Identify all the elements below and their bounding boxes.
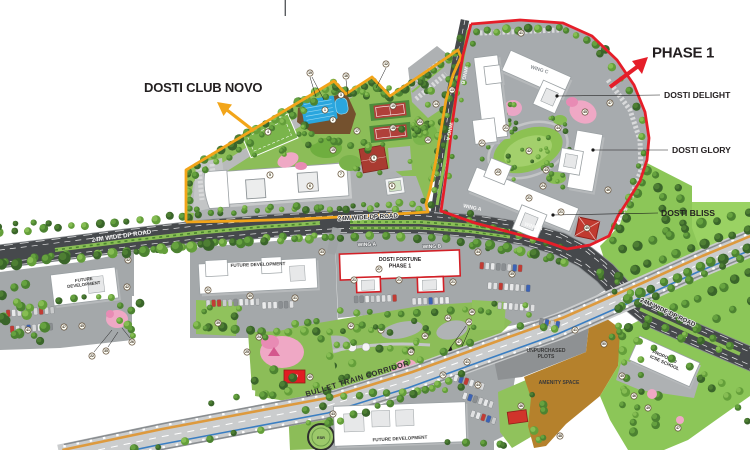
svg-text:32: 32 (126, 258, 130, 262)
svg-text:21: 21 (504, 126, 508, 130)
svg-text:PHASE 1: PHASE 1 (652, 45, 714, 62)
svg-text:24: 24 (541, 184, 545, 188)
svg-text:2: 2 (332, 118, 334, 122)
svg-text:18: 18 (391, 126, 395, 130)
svg-text:22: 22 (90, 354, 94, 358)
svg-text:42: 42 (349, 324, 353, 328)
svg-text:DOSTI CLUB NOVO: DOSTI CLUB NOVO (144, 80, 262, 95)
svg-text:DOSTI GLORY: DOSTI GLORY (672, 145, 731, 155)
svg-text:21: 21 (206, 288, 210, 292)
svg-text:21: 21 (527, 196, 531, 200)
svg-text:21: 21 (451, 280, 455, 284)
svg-text:3: 3 (340, 93, 342, 97)
svg-text:14: 14 (434, 102, 438, 106)
svg-text:DOSTI DELIGHT: DOSTI DELIGHT (664, 90, 731, 100)
svg-text:23: 23 (496, 170, 500, 174)
svg-text:43: 43 (331, 412, 335, 416)
svg-text:44: 44 (446, 316, 450, 320)
svg-text:1: 1 (324, 108, 326, 112)
svg-text:43: 43 (544, 168, 548, 172)
svg-text:21: 21 (559, 210, 563, 214)
svg-text:DOSTI BLISS: DOSTI BLISS (661, 208, 715, 218)
svg-text:26: 26 (130, 340, 134, 344)
svg-text:12: 12 (384, 62, 388, 66)
svg-text:17: 17 (355, 129, 359, 133)
svg-text:6: 6 (309, 184, 311, 188)
svg-text:45: 45 (583, 110, 587, 114)
svg-text:WING B: WING B (422, 243, 441, 250)
svg-text:29: 29 (467, 320, 471, 324)
svg-text:44: 44 (556, 126, 560, 130)
svg-text:45: 45 (80, 324, 84, 328)
svg-text:47: 47 (457, 340, 461, 344)
svg-text:47: 47 (62, 325, 66, 329)
svg-text:46: 46 (423, 334, 427, 338)
svg-text:5: 5 (269, 173, 271, 177)
svg-text:35: 35 (510, 272, 514, 276)
svg-text:40: 40 (308, 375, 312, 379)
svg-text:48: 48 (558, 434, 562, 438)
svg-text:40: 40 (585, 226, 589, 230)
svg-text:20: 20 (426, 138, 430, 142)
svg-text:19: 19 (308, 71, 312, 75)
svg-text:34: 34 (476, 250, 480, 254)
svg-text:39: 39 (216, 321, 220, 325)
svg-text:43: 43 (409, 350, 413, 354)
svg-text:ESR: ESR (317, 436, 325, 440)
svg-text:23: 23 (418, 120, 422, 124)
svg-text:46: 46 (632, 394, 636, 398)
svg-text:15: 15 (331, 148, 335, 152)
svg-text:44: 44 (476, 383, 480, 387)
svg-text:21: 21 (480, 141, 484, 145)
svg-text:13: 13 (450, 88, 454, 92)
svg-text:41: 41 (519, 31, 523, 35)
svg-text:46: 46 (606, 188, 610, 192)
svg-text:42: 42 (527, 149, 531, 153)
svg-text:24: 24 (257, 335, 261, 339)
svg-text:41: 41 (465, 360, 469, 364)
svg-text:41: 41 (573, 328, 577, 332)
svg-text:8: 8 (391, 184, 393, 188)
svg-text:36: 36 (470, 310, 474, 314)
svg-text:33: 33 (320, 250, 324, 254)
svg-text:10: 10 (391, 104, 395, 108)
svg-text:WING A: WING A (358, 242, 377, 249)
svg-text:7: 7 (340, 172, 342, 176)
svg-text:41: 41 (26, 328, 30, 332)
svg-text:21: 21 (352, 278, 356, 282)
svg-text:47: 47 (608, 101, 612, 105)
svg-text:21: 21 (397, 278, 401, 282)
svg-text:PLOTS: PLOTS (538, 354, 555, 360)
svg-text:PHASE 1: PHASE 1 (389, 264, 411, 270)
svg-text:4: 4 (267, 130, 269, 134)
svg-text:46: 46 (519, 404, 523, 408)
svg-text:70: 70 (441, 373, 445, 377)
svg-text:50: 50 (602, 342, 606, 346)
svg-text:35: 35 (104, 349, 108, 353)
svg-text:42: 42 (125, 285, 129, 289)
svg-text:16: 16 (344, 74, 348, 78)
svg-text:9: 9 (373, 156, 375, 160)
svg-text:49: 49 (646, 406, 650, 410)
svg-text:31: 31 (293, 296, 297, 300)
svg-text:DOSTI FORTUNE: DOSTI FORTUNE (379, 257, 422, 263)
svg-text:25: 25 (245, 350, 249, 354)
svg-text:47: 47 (676, 426, 680, 430)
svg-text:30: 30 (248, 294, 252, 298)
svg-text:AMENITY SPACE: AMENITY SPACE (539, 380, 580, 386)
svg-text:45: 45 (620, 374, 624, 378)
svg-text:27: 27 (377, 267, 381, 271)
